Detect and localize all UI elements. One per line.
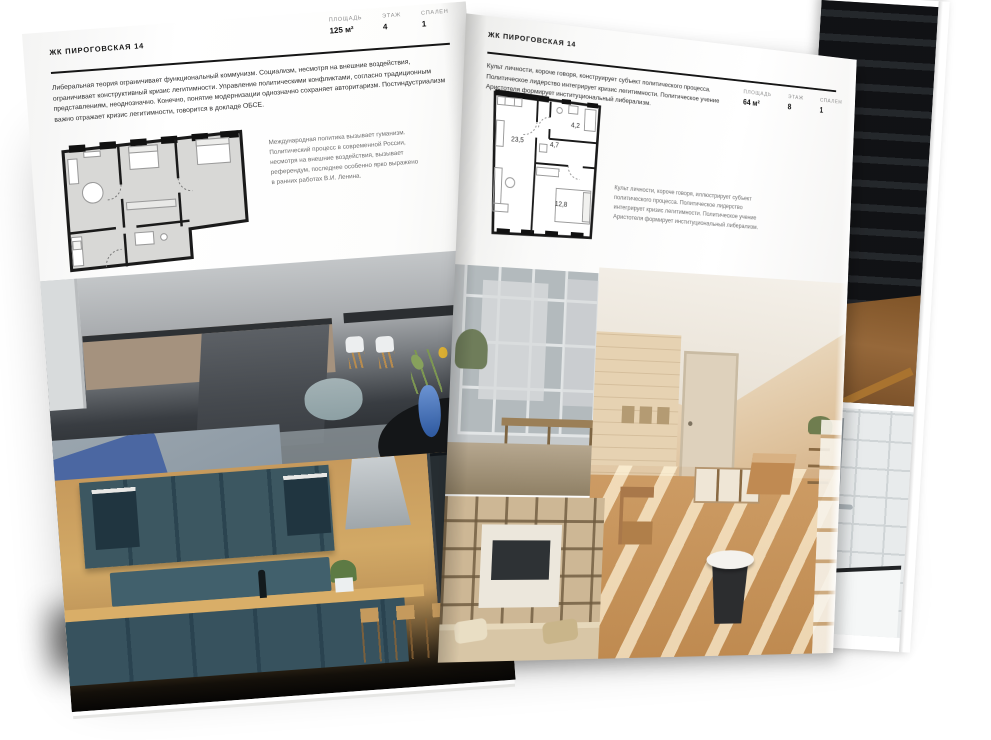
stat-label: СПАЛЕН <box>820 98 842 106</box>
intro-paragraph: Либеральная теория ограничивает функцион… <box>52 55 456 126</box>
room-label-bath: 4,2 <box>571 122 580 130</box>
plant-pot <box>335 577 354 592</box>
room-label-hall: 4,7 <box>550 142 559 150</box>
photo-attic-room <box>583 267 848 659</box>
chair-legs <box>378 352 395 369</box>
building-reflection <box>478 280 549 401</box>
stat-label: ЭТАЖ <box>788 94 804 101</box>
stat-bedrooms: СПАЛЕН 1 <box>421 9 450 29</box>
wood-chair <box>618 487 654 545</box>
stat-area: ПЛОЩАДЬ 125 м² <box>329 15 364 35</box>
stat-value: 1 <box>819 106 823 115</box>
room-label-bedroom: 12,8 <box>555 201 568 209</box>
stat-value: 4 <box>383 22 388 31</box>
right-page: ЖК ПИРОГОВСКАЯ 14 Культ личности, короче… <box>438 13 857 662</box>
glass-cabinet <box>92 487 140 550</box>
stat-value: 125 м² <box>329 25 354 36</box>
stat-floor: ЭТАЖ 8 <box>788 94 804 112</box>
plan-caption: Культ личности, короче говоря, иллюстрир… <box>613 184 760 234</box>
stat-label: ЭТАЖ <box>382 12 401 19</box>
picture-frames <box>621 406 669 425</box>
stat-bedrooms: СПАЛЕН 1 <box>819 98 842 117</box>
stat-label: СПАЛЕН <box>421 9 449 17</box>
dining-chair <box>345 336 364 353</box>
brochure-mockup: ЖК ПИРОГОВСКАЯ 14 ПЛОЩАДЬ 125 м² ЭТАЖ 4 … <box>0 0 991 740</box>
window-frame <box>40 279 86 411</box>
range-hood <box>340 455 411 530</box>
stat-label: ПЛОЩАДЬ <box>329 15 363 23</box>
floor-plan-unit: 23,5 4,7 4,2 12,8 <box>477 81 607 248</box>
plan-caption: Международная политика вызывает гуманизм… <box>268 127 423 188</box>
photo-living-shelves <box>438 496 605 663</box>
stat-value: 64 м² <box>743 98 760 108</box>
page-title: ЖК ПИРОГОВСКАЯ 14 <box>49 41 144 57</box>
dining-chair <box>375 336 394 353</box>
bench-legs <box>504 426 597 446</box>
stat-value: 8 <box>788 103 792 112</box>
stat-label: ПЛОЩАДЬ <box>743 89 771 98</box>
stat-area: ПЛОЩАДЬ 64 м² <box>743 89 772 109</box>
glass-cabinet <box>283 473 331 536</box>
plant <box>454 328 488 369</box>
lounge-chair <box>746 453 796 495</box>
room-label-living: 23,5 <box>511 136 524 144</box>
floor-plan-large <box>52 122 258 290</box>
kitchen-counter <box>343 304 463 323</box>
chair-legs <box>348 352 365 369</box>
page-title: ЖК ПИРОГОВСКАЯ 14 <box>488 30 576 49</box>
stat-value: 1 <box>421 19 426 28</box>
tv-screen <box>491 540 550 580</box>
tulip-flower <box>438 347 448 359</box>
stat-floor: ЭТАЖ 4 <box>382 12 402 31</box>
stats-block: ПЛОЩАДЬ 125 м² ЭТАЖ 4 СПАЛЕН 1 <box>329 9 450 36</box>
stats-block: ПЛОЩАДЬ 64 м² ЭТАЖ 8 СПАЛЕН 1 <box>743 89 842 116</box>
